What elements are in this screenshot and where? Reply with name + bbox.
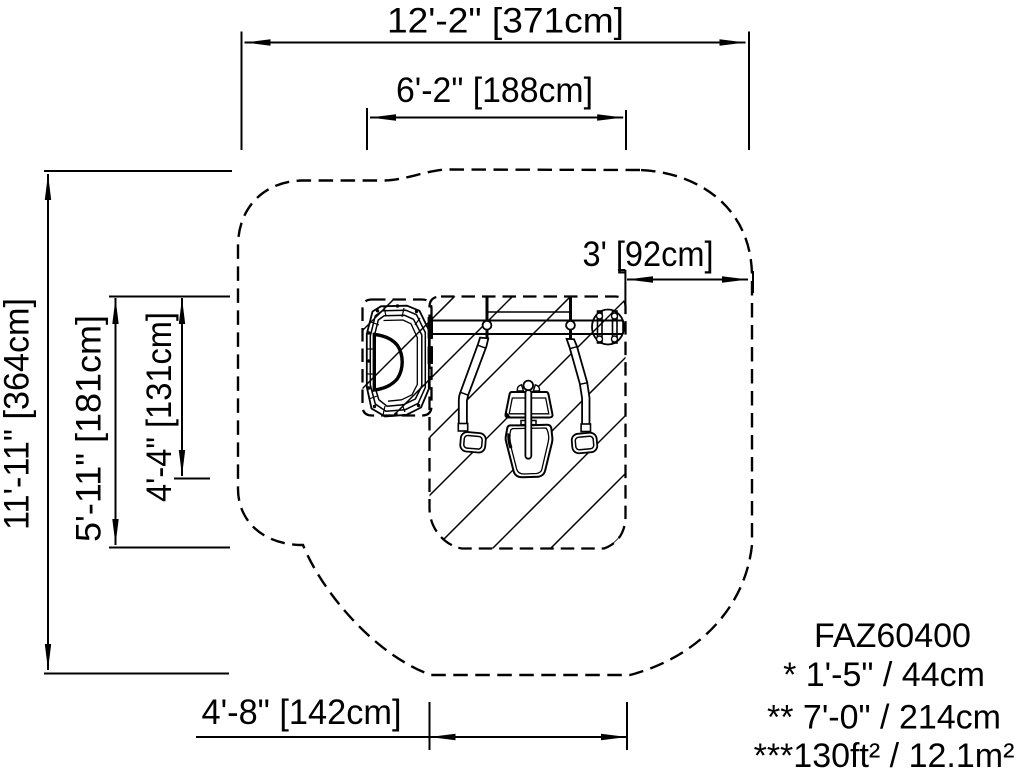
svg-text:4'-4" [131cm]: 4'-4" [131cm] (140, 312, 179, 502)
svg-text:***130ft² / 12.1m²: ***130ft² / 12.1m² (754, 737, 1015, 775)
svg-text:** 7'-0" / 214cm: ** 7'-0" / 214cm (767, 699, 1001, 737)
svg-text:4'-8" [142cm]: 4'-8" [142cm] (202, 693, 402, 732)
svg-text:* 1'-5" / 44cm: * 1'-5" / 44cm (783, 656, 985, 694)
svg-text:5'-11" [181cm]: 5'-11" [181cm] (70, 315, 109, 542)
svg-text:12'-2" [371cm]: 12'-2" [371cm] (387, 2, 624, 41)
svg-text:11'-11" [364cm]: 11'-11" [364cm] (0, 298, 37, 530)
svg-text:3' [92cm]: 3' [92cm] (583, 235, 714, 274)
svg-text:FAZ60400: FAZ60400 (814, 617, 971, 655)
svg-text:6'-2" [188cm]: 6'-2" [188cm] (396, 71, 593, 110)
